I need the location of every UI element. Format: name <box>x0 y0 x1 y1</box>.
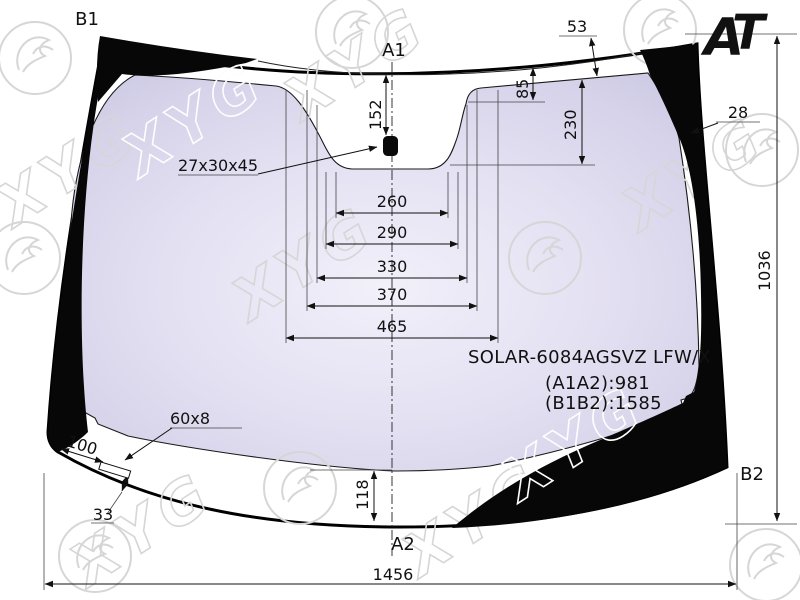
label-a1: A1 <box>382 40 406 61</box>
dim-text-60x8: 60x8 <box>170 409 210 428</box>
dim-text-53: 53 <box>567 17 587 36</box>
dim-text-28: 28 <box>728 103 748 122</box>
dim-text-1036: 1036 <box>755 250 774 291</box>
dim-text-118: 118 <box>353 479 372 510</box>
part-code: SOLAR-6084AGSVZ LFW/X <box>468 347 711 368</box>
dim-text-1456: 1456 <box>373 565 414 584</box>
at-logo-letter-a: A <box>700 8 744 68</box>
dim-text-330: 330 <box>377 257 408 276</box>
dim-text-mount-size: 27x30x45 <box>178 156 258 175</box>
dim-text-230: 230 <box>561 109 580 140</box>
windshield-diagram: XYG XYG XYG XYG XYG XYG XYG XYG <box>0 0 800 600</box>
label-b2: B2 <box>740 464 764 485</box>
label-b1: B1 <box>75 9 99 30</box>
at-logo: T A <box>700 5 768 68</box>
dim-text-152: 152 <box>366 99 385 130</box>
dim-text-370: 370 <box>377 285 408 304</box>
dim-text-260: 260 <box>377 192 408 211</box>
dim-text-85: 85 <box>513 79 532 99</box>
windshield-drawing-page: XYG XYG XYG XYG XYG XYG XYG XYG <box>0 0 800 600</box>
dim-text-33: 33 <box>93 505 113 524</box>
mirror-mount <box>383 136 398 156</box>
label-a2: A2 <box>391 534 415 555</box>
dim-text-465: 465 <box>377 317 408 336</box>
part-b1b2-value: (B1B2):1585 <box>545 393 662 414</box>
part-a1a2-value: (A1A2):981 <box>545 373 650 394</box>
dim-text-290: 290 <box>377 223 408 242</box>
